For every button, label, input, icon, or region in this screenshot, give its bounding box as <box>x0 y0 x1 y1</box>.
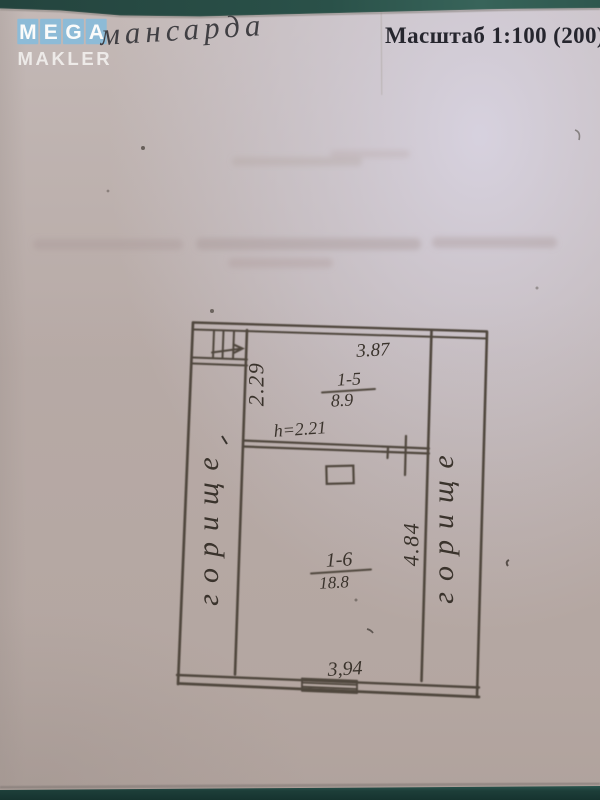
svg-text:M: M <box>19 21 37 44</box>
svg-text:8.9: 8.9 <box>330 389 354 410</box>
svg-text:4.84: 4.84 <box>399 522 424 567</box>
svg-text:3.87: 3.87 <box>355 339 392 362</box>
svg-text:2.29: 2.29 <box>244 362 269 407</box>
svg-text:1-6: 1-6 <box>325 548 353 571</box>
svg-text:горище: горище <box>427 444 460 603</box>
svg-text:1-5: 1-5 <box>336 368 361 389</box>
svg-text:h=2.21: h=2.21 <box>273 417 327 441</box>
svg-text:18.8: 18.8 <box>319 572 350 593</box>
svg-text:G: G <box>65 21 81 44</box>
svg-text:горище: горище <box>192 446 225 605</box>
svg-text:E: E <box>44 21 58 44</box>
svg-text:MAKLER: MAKLER <box>18 48 113 69</box>
svg-text:3,94: 3,94 <box>326 657 363 681</box>
svg-text:Масштаб 1:100 (200): Масштаб 1:100 (200) <box>385 23 600 48</box>
